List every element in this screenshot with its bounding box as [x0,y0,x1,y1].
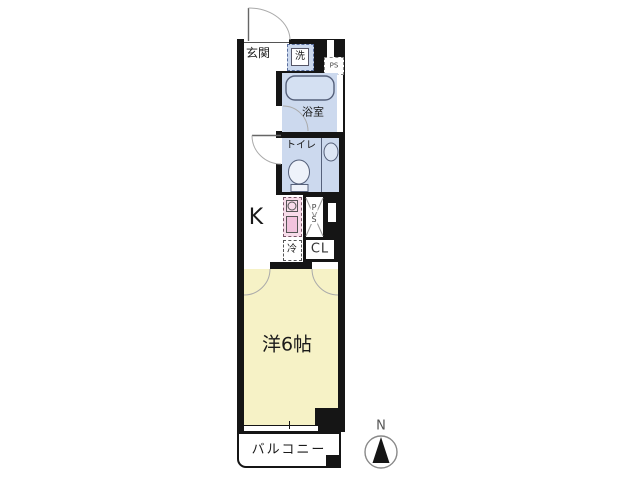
room-doorway-left [244,262,270,269]
balcony-window [244,426,318,431]
balcony-column [326,455,341,468]
ps-mid-p-label: P [311,204,318,212]
duct-strip [337,75,343,132]
washer-label: 洗 [295,52,305,62]
compass-circle-icon [365,436,397,468]
genkan-label: 玄関 [246,47,270,59]
north-label: N [376,420,386,433]
bathroom-doorway [276,106,282,131]
corner-column [315,408,338,425]
floor-plan: 玄関 洗 PS 浴室 トイレ K P S 冷 CL 洋6帖 バルコニー N [0,0,640,480]
toilet-doorway [276,138,282,164]
toilet-label: トイレ [286,141,316,151]
kitchen-sink-box [286,200,298,212]
fridge-label: 冷 [287,245,297,255]
bathroom-area [282,73,338,132]
kitchen-stove-box [286,216,298,233]
wall-niche [328,203,336,222]
main-room-label: 洋6帖 [262,336,312,355]
kitchen-label: K [249,207,263,229]
north-arrow-icon [373,437,390,463]
ps-mid-s-label: S [310,216,317,224]
ps-upper-label: PS [330,63,339,70]
entry-door-arc-icon [249,8,291,40]
balcony-label: バルコニー [252,444,327,457]
bathroom-label: 浴室 [302,107,324,118]
room-doorway-right [312,262,338,269]
ps-upper-strip [327,40,334,57]
closet-label: CL [311,243,329,256]
